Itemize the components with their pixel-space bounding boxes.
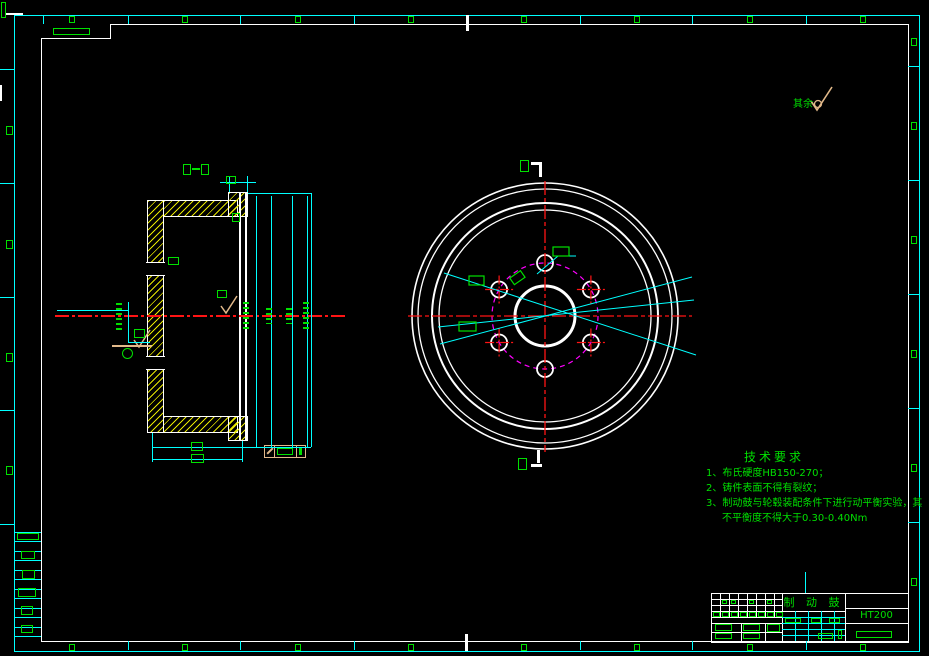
title-block-text bbox=[749, 600, 754, 604]
title-block-text bbox=[722, 612, 729, 617]
section-cut-mark-bottom bbox=[531, 464, 542, 467]
zone-label bbox=[911, 38, 917, 46]
title-block-text bbox=[767, 624, 780, 632]
frame-line bbox=[465, 634, 468, 651]
revision-table-row bbox=[14, 617, 41, 618]
title-block-text bbox=[743, 633, 760, 639]
frame-line bbox=[765, 623, 766, 641]
cad-canvas: 制 动 鼓 HT200 技术要求 1、布氏硬度HB150-270； 2、铸件表面… bbox=[0, 0, 929, 656]
zone-label bbox=[6, 240, 13, 249]
dimension-text bbox=[226, 176, 236, 184]
title-block-text bbox=[749, 612, 756, 617]
zone-label bbox=[860, 644, 866, 651]
frame-line bbox=[845, 608, 908, 609]
part-name: 制 动 鼓 bbox=[782, 593, 845, 611]
zone-label bbox=[408, 644, 414, 651]
revision-table-row bbox=[14, 598, 41, 599]
revision-table-row bbox=[14, 636, 41, 637]
dimension-text bbox=[232, 213, 240, 222]
title-block-text bbox=[776, 612, 783, 617]
tech-requirement-item: 1、布氏硬度HB150-270； bbox=[706, 468, 926, 480]
dimension-line bbox=[806, 15, 807, 24]
revision-entry bbox=[22, 570, 35, 579]
dimension-line bbox=[782, 623, 845, 624]
revision-table-row bbox=[14, 541, 41, 542]
title-block-text bbox=[767, 600, 772, 604]
title-block-text bbox=[838, 630, 842, 639]
front-view bbox=[400, 170, 700, 462]
dimension-line bbox=[834, 611, 835, 641]
frame-line bbox=[0, 85, 2, 101]
dimension-line bbox=[247, 176, 248, 192]
section-label bbox=[201, 164, 209, 175]
section-bolt-hole-gap bbox=[146, 262, 165, 276]
revision-entry bbox=[21, 551, 35, 559]
vertical-dimension-text bbox=[243, 302, 249, 330]
section-bottom-flange bbox=[163, 416, 238, 433]
title-block-text bbox=[715, 633, 732, 639]
frame-line bbox=[782, 611, 845, 612]
dimension-line bbox=[580, 641, 581, 650]
dimension-line bbox=[256, 196, 257, 448]
datum-leader-line bbox=[112, 345, 152, 347]
dimension-line bbox=[152, 433, 153, 462]
tech-requirement-item: 2、铸件表面不得有裂纹； bbox=[706, 483, 926, 495]
dimension-line bbox=[692, 641, 693, 650]
dimension-line bbox=[908, 66, 919, 67]
dimension-line bbox=[908, 180, 919, 181]
datum-circle bbox=[122, 348, 133, 359]
zone-label bbox=[911, 236, 917, 244]
dimension-line bbox=[128, 641, 129, 650]
dimension-text bbox=[134, 329, 145, 338]
section-letter bbox=[520, 160, 529, 172]
dimension-line bbox=[0, 410, 14, 411]
title-block-text bbox=[743, 624, 760, 631]
dimension-line bbox=[128, 302, 129, 342]
zone-label bbox=[295, 644, 301, 651]
zone-label bbox=[6, 466, 13, 475]
frame-line bbox=[41, 641, 908, 642]
revision-table-row bbox=[14, 560, 41, 561]
revision-entry bbox=[21, 606, 33, 615]
title-block-text bbox=[740, 612, 747, 617]
frame-line bbox=[41, 38, 111, 39]
dimension-line bbox=[908, 294, 919, 295]
zone-label bbox=[182, 644, 188, 651]
frame-label bbox=[53, 28, 90, 35]
dimension-line bbox=[795, 611, 796, 641]
revision-entry bbox=[18, 588, 36, 597]
title-block-text bbox=[758, 612, 765, 617]
frame-line bbox=[741, 623, 742, 641]
dimension-line bbox=[240, 15, 241, 24]
frame-line bbox=[845, 623, 908, 624]
dimension-line bbox=[580, 15, 581, 24]
dimension-line bbox=[0, 183, 14, 184]
zone-label bbox=[69, 644, 75, 651]
dimension-line bbox=[354, 641, 355, 650]
title-block-text bbox=[722, 600, 727, 604]
vertical-dimension-text bbox=[266, 308, 272, 324]
section-cut-mark-bottom bbox=[537, 450, 540, 463]
corner-mark bbox=[1, 2, 6, 18]
dimension-line bbox=[240, 641, 241, 650]
dimension-line bbox=[692, 15, 693, 24]
revision-table-row bbox=[14, 579, 41, 580]
dimension-line bbox=[242, 441, 243, 462]
frame-line bbox=[110, 24, 111, 39]
dimension-line bbox=[0, 524, 14, 525]
frame-line bbox=[41, 38, 42, 642]
revision-entry bbox=[21, 625, 33, 633]
title-block-text bbox=[829, 618, 840, 623]
zone-label bbox=[634, 644, 640, 651]
vertical-dimension-text bbox=[303, 302, 309, 330]
tolerance-value bbox=[277, 448, 293, 455]
zone-label bbox=[6, 126, 13, 135]
dimension-line bbox=[806, 641, 807, 650]
dimension-text bbox=[191, 442, 203, 451]
dimension-line bbox=[248, 193, 311, 194]
dimension-text bbox=[191, 454, 204, 463]
dimension-text bbox=[168, 257, 179, 265]
tech-requirement-item: 3、制动鼓与轮毂装配条件下进行动平衡实验，其 bbox=[706, 498, 926, 510]
title-block-text bbox=[818, 633, 833, 639]
vertical-dimension-text bbox=[286, 308, 292, 324]
frame-line bbox=[6, 13, 23, 15]
dimension-line bbox=[43, 15, 44, 24]
vertical-dimension-text bbox=[116, 303, 122, 330]
dimension-line bbox=[128, 342, 150, 343]
title-block-text bbox=[715, 624, 732, 631]
title-block-text bbox=[811, 618, 821, 623]
zone-label bbox=[747, 644, 753, 651]
dimension-line bbox=[354, 15, 355, 24]
zone-label bbox=[182, 16, 188, 23]
zone-label bbox=[521, 644, 527, 651]
title-block-text bbox=[731, 600, 736, 604]
frame-line bbox=[110, 24, 908, 25]
zone-label bbox=[911, 350, 917, 358]
surface-finish-note: 其余 bbox=[793, 95, 813, 110]
frame-line bbox=[711, 605, 782, 606]
title-block-text bbox=[767, 612, 774, 617]
title-block-text bbox=[785, 618, 801, 623]
dimension-line bbox=[152, 447, 311, 448]
section-top-flange bbox=[163, 200, 238, 217]
section-cut-mark-top bbox=[539, 164, 542, 177]
zone-label bbox=[860, 16, 866, 23]
dimension-line bbox=[0, 69, 14, 70]
zone-label bbox=[6, 353, 13, 362]
dimension-text bbox=[217, 290, 227, 298]
revision-entry bbox=[17, 533, 39, 540]
zone-label bbox=[634, 16, 640, 23]
datum-letter bbox=[299, 448, 302, 455]
zone-label bbox=[911, 122, 917, 130]
section-letter bbox=[518, 458, 527, 470]
zone-label bbox=[911, 464, 917, 472]
material-spec: HT200 bbox=[845, 608, 908, 623]
frame-line bbox=[711, 617, 782, 618]
title-block-text bbox=[731, 612, 738, 617]
title-block-text bbox=[856, 631, 892, 638]
zone-label bbox=[747, 16, 753, 23]
dimension-line bbox=[908, 408, 919, 409]
zone-label bbox=[408, 16, 414, 23]
dimension-line bbox=[782, 635, 845, 636]
dimension-line bbox=[128, 15, 129, 24]
section-label-dash bbox=[192, 168, 200, 170]
dimension-line bbox=[908, 522, 919, 523]
zone-label bbox=[911, 578, 917, 586]
section-bolt-hole-gap bbox=[146, 356, 165, 370]
frame-line bbox=[466, 15, 469, 31]
dimension-line bbox=[782, 629, 845, 630]
frame-line bbox=[908, 24, 909, 642]
dimension-line bbox=[0, 297, 14, 298]
zone-label bbox=[69, 16, 75, 23]
zone-label bbox=[295, 16, 301, 23]
dimension-line bbox=[311, 193, 312, 447]
tech-requirements-title: 技术要求 bbox=[744, 448, 926, 465]
section-label bbox=[183, 164, 191, 175]
dimension-line bbox=[805, 572, 806, 593]
dimension-line bbox=[808, 611, 809, 641]
title-block-text bbox=[713, 612, 720, 617]
frame-line bbox=[845, 593, 846, 641]
zone-label bbox=[521, 16, 527, 23]
tech-requirement-item: 不平衡度不得大于0.30-0.40Nm bbox=[722, 513, 926, 525]
tech-requirements: 技术要求 1、布氏硬度HB150-270； 2、铸件表面不得有裂纹； 3、制动鼓… bbox=[706, 448, 926, 525]
dimension-line bbox=[292, 196, 293, 448]
